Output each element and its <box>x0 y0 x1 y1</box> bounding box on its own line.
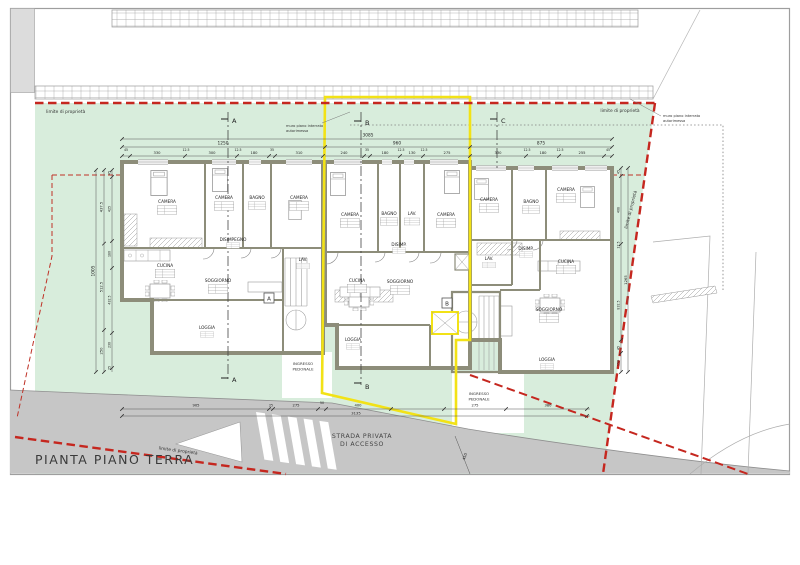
drawing-title: PIANTA PIANO TERRA <box>35 452 194 467</box>
svg-text:255: 255 <box>578 151 586 155</box>
svg-text:45: 45 <box>617 346 621 350</box>
svg-text:275: 275 <box>443 151 451 155</box>
svg-text:CAMERA: CAMERA <box>290 195 308 200</box>
svg-text:CAMERA: CAMERA <box>158 199 176 204</box>
section-a-top: A <box>232 117 237 125</box>
svg-text:LOGGIA: LOGGIA <box>539 357 555 362</box>
svg-text:12.5: 12.5 <box>397 148 404 152</box>
dim-bottom-total: 3135 <box>351 411 361 415</box>
svg-text:CAMERA: CAMERA <box>215 195 233 200</box>
svg-text:275: 275 <box>292 404 300 408</box>
svg-text:SOGGIORNO: SOGGIORNO <box>536 307 563 312</box>
dim-right-outer: 1265 <box>624 275 628 285</box>
section-b-bottom: B <box>365 383 369 391</box>
svg-text:PEDONALE: PEDONALE <box>468 397 490 402</box>
svg-text:LOGGIA: LOGGIA <box>345 337 361 342</box>
svg-text:SOGGIORNO: SOGGIORNO <box>387 279 414 284</box>
svg-text:180: 180 <box>381 151 389 155</box>
svg-text:380: 380 <box>544 404 552 408</box>
svg-text:425: 425 <box>108 206 112 212</box>
svg-text:905: 905 <box>192 404 200 408</box>
entrance-label-left: INGRESSO PEDONALE <box>292 361 314 372</box>
dim-left-outer: 1005 <box>91 265 97 276</box>
svg-text:LOGGIA: LOGGIA <box>199 325 215 330</box>
svg-text:muro piano interrato: muro piano interrato <box>663 114 700 118</box>
floor-plan-svg: A B C A B 3085 1250 <box>0 0 800 565</box>
dim-total-right: 875 <box>537 141 545 147</box>
svg-text:DISIMP.: DISIMP. <box>391 242 406 247</box>
entrance-label-right: INGRESSO PEDONALE <box>468 391 490 402</box>
svg-text:250: 250 <box>100 347 104 355</box>
section-c-top: C <box>501 117 506 125</box>
svg-text:autorimessa: autorimessa <box>663 119 685 123</box>
svg-text:432.5: 432.5 <box>108 295 112 304</box>
svg-text:CUCINA: CUCINA <box>558 259 574 264</box>
svg-text:autorimessa: autorimessa <box>286 129 308 133</box>
svg-text:DI ACCESSO: DI ACCESSO <box>340 441 384 448</box>
svg-text:180: 180 <box>250 151 258 155</box>
svg-text:CAMERA: CAMERA <box>480 197 498 202</box>
svg-text:CUCINA: CUCINA <box>349 278 365 283</box>
svg-text:25: 25 <box>269 404 273 408</box>
unit-marker-a: A <box>267 297 271 303</box>
svg-text:CAMERA: CAMERA <box>437 212 455 217</box>
svg-text:230: 230 <box>108 342 112 348</box>
svg-text:130: 130 <box>408 151 416 155</box>
road-label: STRADA PRIVATA DI ACCESSO <box>332 433 392 448</box>
svg-text:45: 45 <box>606 148 610 152</box>
svg-text:330: 330 <box>153 151 161 155</box>
svg-text:INGRESSO: INGRESSO <box>293 361 313 366</box>
svg-text:12.5: 12.5 <box>182 148 189 152</box>
svg-text:150: 150 <box>617 360 621 366</box>
unit-marker-b: B <box>445 302 449 308</box>
svg-text:DISIMPEGNO: DISIMPEGNO <box>220 237 248 242</box>
building <box>122 159 612 372</box>
bay-window <box>432 312 458 334</box>
svg-text:35: 35 <box>365 148 369 152</box>
dim-overall: 3085 <box>363 133 374 139</box>
section-a-bottom: A <box>232 376 237 384</box>
svg-text:25: 25 <box>108 366 112 370</box>
svg-text:45: 45 <box>617 170 621 174</box>
adjacent-street-strip <box>11 9 35 93</box>
svg-text:240: 240 <box>340 151 348 155</box>
svg-text:12.5: 12.5 <box>556 148 563 152</box>
section-b-top: B <box>365 119 369 127</box>
svg-text:DISIMP.: DISIMP. <box>518 246 533 251</box>
svg-text:LAV.: LAV. <box>408 211 417 216</box>
svg-text:12.5: 12.5 <box>523 148 530 152</box>
svg-text:12.5: 12.5 <box>617 241 621 248</box>
svg-text:437.5: 437.5 <box>100 201 104 212</box>
svg-text:180: 180 <box>539 151 547 155</box>
dim-total-middle: 960 <box>393 141 401 147</box>
svg-text:330: 330 <box>494 151 502 155</box>
dim-total-left: 1250 <box>218 141 229 147</box>
svg-text:275: 275 <box>471 404 479 408</box>
svg-text:BAGNO: BAGNO <box>381 211 397 216</box>
svg-text:512.5: 512.5 <box>100 281 104 292</box>
svg-text:LAV.: LAV. <box>485 256 494 261</box>
svg-text:12.5: 12.5 <box>234 148 241 152</box>
svg-text:45: 45 <box>108 171 112 175</box>
svg-text:CAMERA: CAMERA <box>557 187 575 192</box>
svg-text:35: 35 <box>270 148 274 152</box>
property-line-label-top-right: limite di proprietà <box>600 107 640 114</box>
svg-text:408: 408 <box>617 207 621 213</box>
svg-text:45: 45 <box>124 148 128 152</box>
svg-text:50: 50 <box>320 401 324 405</box>
svg-text:310: 310 <box>295 151 303 155</box>
svg-text:832.5: 832.5 <box>617 300 621 309</box>
svg-text:LAV.: LAV. <box>299 257 308 262</box>
svg-text:muro piano interrato: muro piano interrato <box>286 124 323 128</box>
svg-text:CUCINA: CUCINA <box>157 263 173 268</box>
svg-text:400: 400 <box>354 404 362 408</box>
svg-text:PEDONALE: PEDONALE <box>292 367 314 372</box>
svg-text:300: 300 <box>208 151 216 155</box>
svg-text:STRADA PRIVATA: STRADA PRIVATA <box>332 433 392 440</box>
svg-text:BAGNO: BAGNO <box>523 199 539 204</box>
svg-text:SOGGIORNO: SOGGIORNO <box>205 278 232 283</box>
property-line-label-top-left: limite di proprietà <box>46 108 86 115</box>
svg-text:180: 180 <box>108 251 112 257</box>
svg-text:INGRESSO: INGRESSO <box>469 391 489 396</box>
drawing-sheet: A B C A B 3085 1250 <box>0 0 800 565</box>
shaft <box>455 254 469 270</box>
svg-text:12.5: 12.5 <box>420 148 427 152</box>
svg-text:CAMERA: CAMERA <box>341 212 359 217</box>
svg-text:BAGNO: BAGNO <box>249 195 265 200</box>
